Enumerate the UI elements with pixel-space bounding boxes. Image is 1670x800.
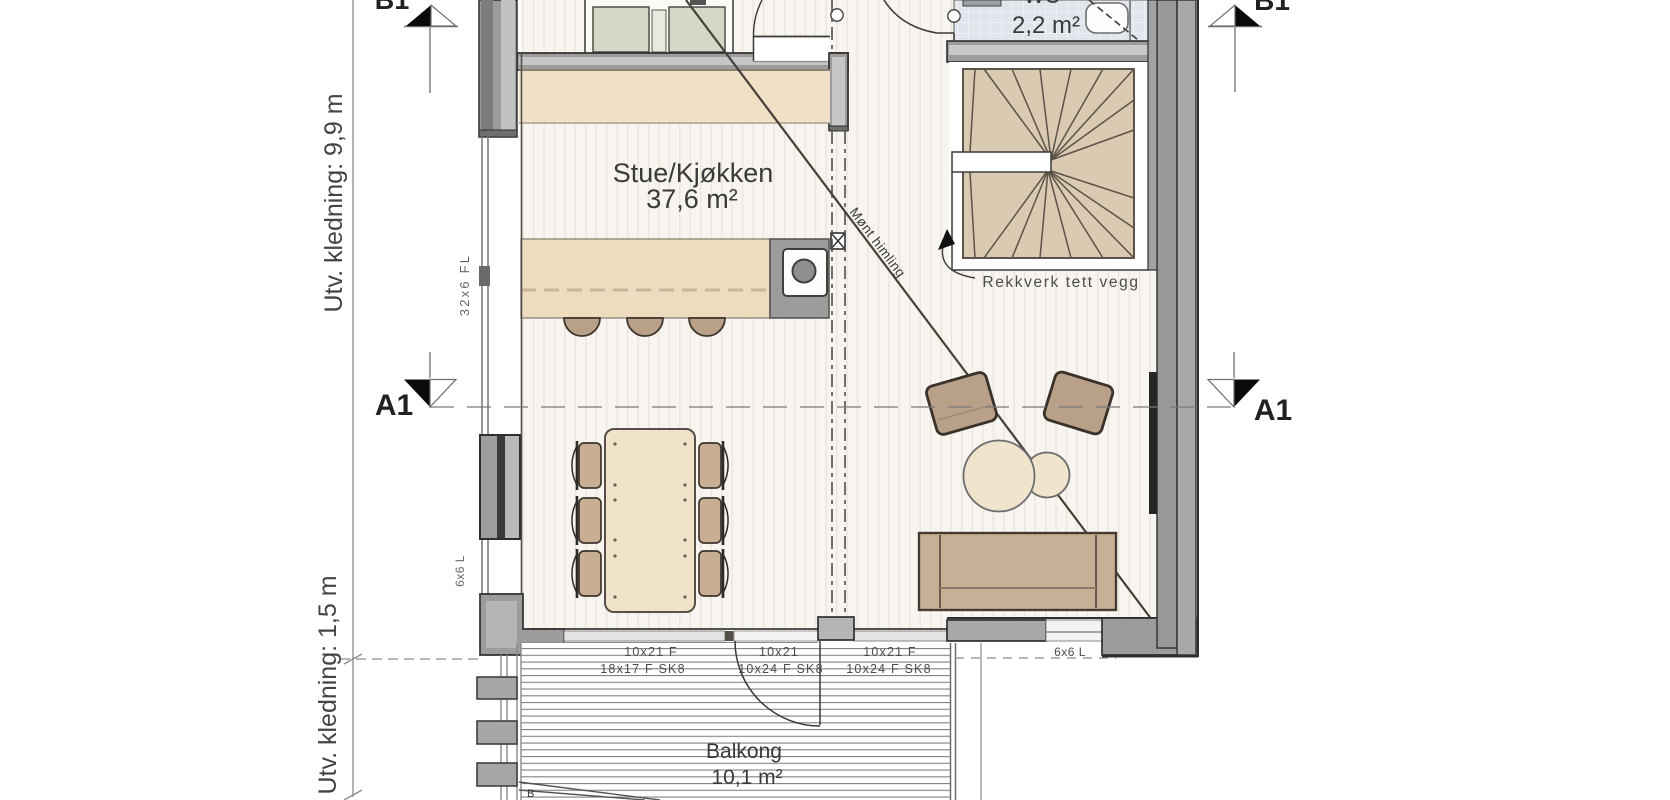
- svg-text:6x6 L: 6x6 L: [1054, 645, 1086, 659]
- svg-text:10x24 F SK8: 10x24 F SK8: [846, 662, 931, 676]
- svg-text:Balkong: Balkong: [706, 740, 782, 763]
- svg-text:10x21 F: 10x21 F: [863, 645, 917, 659]
- svg-text:37,6 m²: 37,6 m²: [646, 184, 738, 214]
- svg-text:10x21 F: 10x21 F: [624, 645, 678, 659]
- svg-text:32x6 FL: 32x6 FL: [457, 254, 472, 316]
- svg-text:A1: A1: [1254, 394, 1292, 427]
- svg-text:2,2 m²: 2,2 m²: [1012, 12, 1080, 39]
- svg-text:Utv. kledning: 1,5 m: Utv. kledning: 1,5 m: [314, 575, 342, 794]
- svg-text:10x21: 10x21: [759, 645, 799, 659]
- svg-text:10x24 F SK8: 10x24 F SK8: [738, 662, 823, 676]
- svg-text:Rekkverk tett vegg: Rekkverk tett vegg: [982, 274, 1139, 291]
- svg-text:Utv. kledning: 9,9 m: Utv. kledning: 9,9 m: [320, 93, 348, 312]
- svg-text:18x17 F SK8: 18x17 F SK8: [600, 662, 685, 676]
- svg-text:10,1 m²: 10,1 m²: [711, 766, 782, 789]
- svg-text:A1: A1: [375, 389, 413, 422]
- svg-text:B: B: [527, 788, 534, 800]
- svg-text:B1: B1: [1254, 0, 1290, 16]
- svg-text:B1: B1: [375, 0, 410, 15]
- svg-text:6x6 L: 6x6 L: [453, 555, 467, 587]
- svg-text:WC: WC: [1024, 0, 1061, 8]
